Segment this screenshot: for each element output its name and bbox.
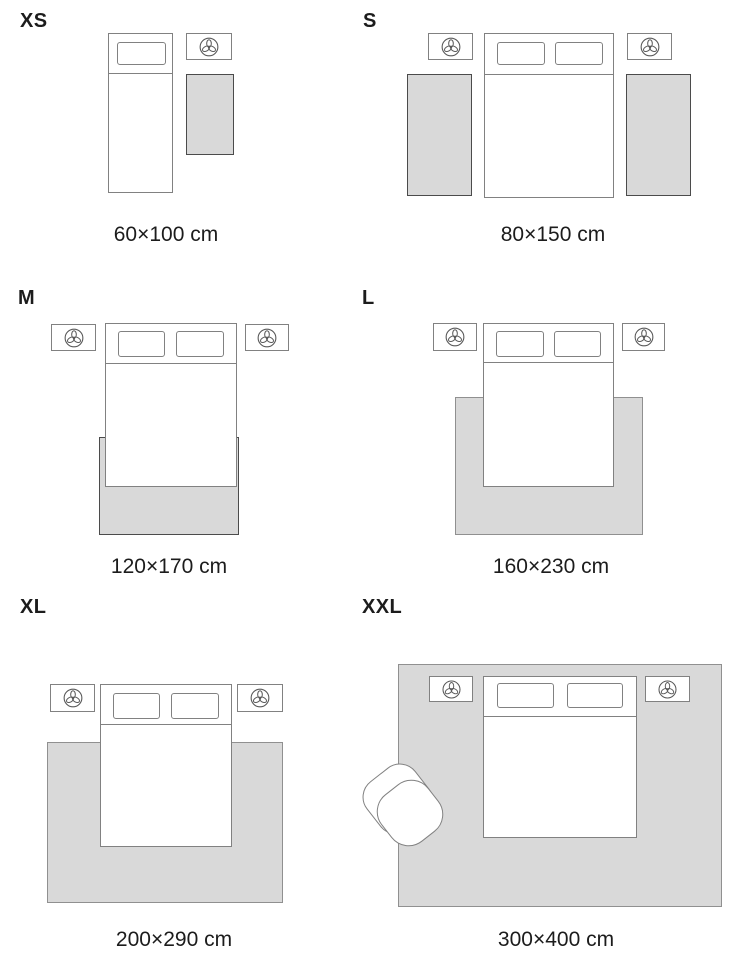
bed-double — [483, 323, 614, 487]
rug-size-guide: XS 60×100 cm S — [0, 0, 740, 960]
pillow-right — [176, 331, 224, 357]
lamp-icon — [440, 678, 463, 701]
bed-headboard — [485, 34, 613, 75]
lamp-icon — [632, 325, 656, 349]
bed-headboard — [106, 324, 236, 364]
rug-runner-right — [626, 74, 691, 196]
bed-headboard — [484, 324, 613, 363]
lamp-icon — [61, 686, 85, 710]
lamp-icon — [656, 678, 679, 701]
nightstand-right — [245, 324, 289, 351]
pillow-left — [113, 693, 160, 719]
rug-size-text: 120×170 cm — [59, 555, 279, 579]
lamp-icon — [255, 326, 279, 350]
bed-double — [100, 684, 232, 847]
panel-size-letter: XL — [20, 596, 46, 619]
pillow-right — [555, 42, 603, 65]
nightstand-right — [237, 684, 283, 712]
pillow-left — [497, 42, 545, 65]
lamp-icon — [439, 35, 463, 59]
bed-double — [483, 676, 637, 838]
nightstand-left — [429, 676, 473, 702]
panel-size-letter: XS — [20, 10, 47, 33]
pillow-right — [567, 683, 623, 708]
nightstand-left — [51, 324, 96, 351]
panel-size-letter: M — [18, 287, 35, 310]
nightstand-right — [627, 33, 672, 60]
pillow-right — [171, 693, 219, 719]
panel-size-letter: XXL — [362, 596, 402, 619]
lamp-icon — [443, 325, 467, 349]
panel-m: M 120×170 cm — [0, 280, 360, 590]
panel-l: L 160×230 cm — [360, 280, 740, 590]
panel-xxl: XXL 300×400 cm — [360, 590, 740, 960]
pillow-left — [497, 683, 554, 708]
nightstand-left — [433, 323, 477, 351]
lamp-icon — [248, 686, 272, 710]
panel-s: S 80×150 cm — [360, 0, 740, 280]
pillow — [117, 42, 166, 65]
pillow-right — [554, 331, 601, 357]
panel-xl: XL 200×290 cm — [0, 590, 360, 960]
pillow-left — [496, 331, 544, 357]
lamp-icon — [197, 35, 221, 59]
lamp-icon — [62, 326, 86, 350]
rug-size-text: 160×230 cm — [441, 555, 661, 579]
bed-double — [105, 323, 237, 487]
panel-xs: XS 60×100 cm — [0, 0, 360, 280]
rug-size-text: 200×290 cm — [64, 928, 284, 952]
lamp-icon — [638, 35, 662, 59]
rug-size-text: 80×150 cm — [443, 223, 663, 247]
rug-size-text: 60×100 cm — [56, 223, 276, 247]
rug — [186, 74, 234, 155]
nightstand-right — [645, 676, 690, 702]
bed-headboard — [101, 685, 231, 725]
nightstand-right — [622, 323, 665, 351]
rug-size-text: 300×400 cm — [446, 928, 666, 952]
panel-size-letter: S — [363, 10, 377, 33]
bed-double — [484, 33, 614, 198]
nightstand-left — [50, 684, 95, 712]
bed-single — [108, 33, 173, 193]
pillow-left — [118, 331, 165, 357]
nightstand — [186, 33, 232, 60]
panel-size-letter: L — [362, 287, 375, 310]
bed-headboard — [109, 34, 172, 74]
rug-runner-left — [407, 74, 472, 196]
bed-headboard — [484, 677, 636, 717]
nightstand-left — [428, 33, 473, 60]
